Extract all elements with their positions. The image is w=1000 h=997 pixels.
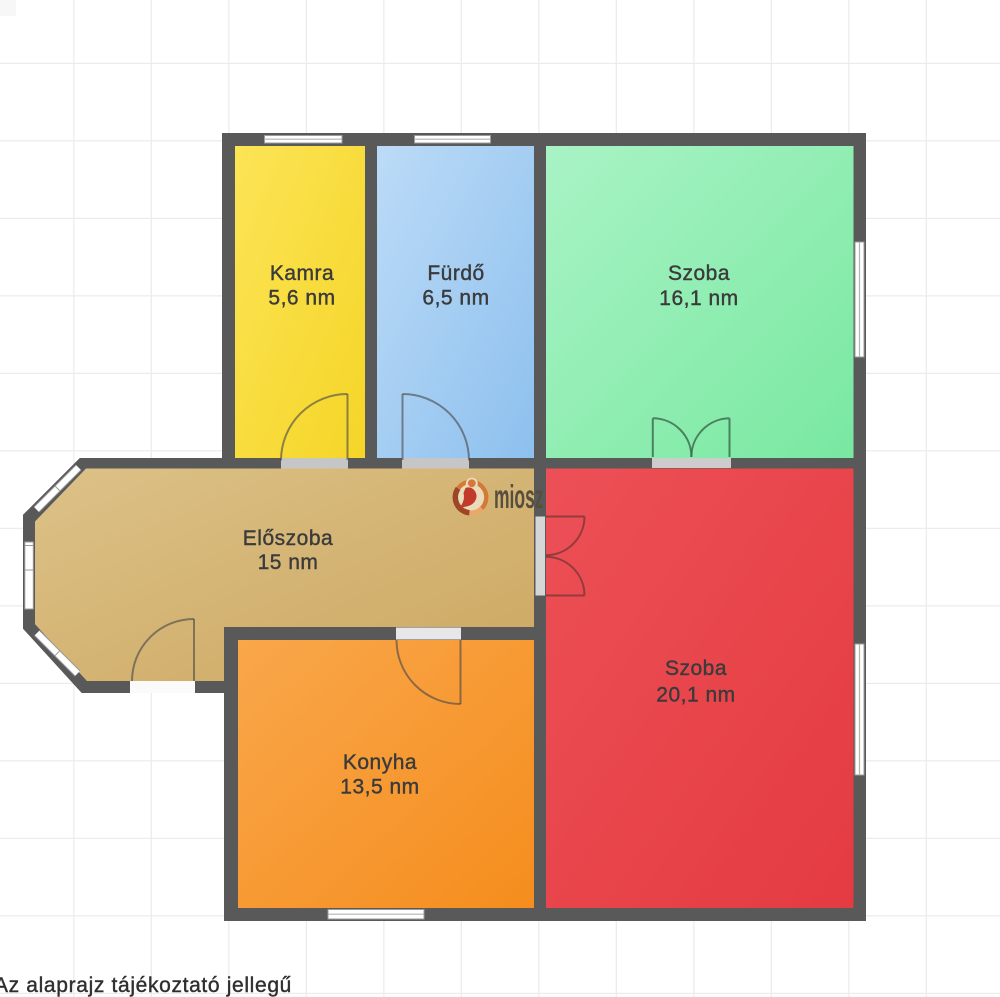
svg-text:6,5 nm: 6,5 nm	[422, 287, 489, 310]
svg-text:13,5 nm: 13,5 nm	[340, 776, 419, 799]
svg-text:20,1 nm: 20,1 nm	[656, 684, 735, 707]
svg-text:Konyha: Konyha	[343, 751, 417, 774]
svg-text:Fürdő: Fürdő	[427, 262, 484, 285]
svg-text:5,6 nm: 5,6 nm	[268, 287, 335, 310]
svg-text:Az alaprajz tájékoztató jelleg: Az alaprajz tájékoztató jellegű	[0, 974, 292, 997]
svg-text:Szoba: Szoba	[665, 657, 727, 680]
svg-text:16,1 nm: 16,1 nm	[659, 287, 738, 310]
svg-text:15 nm: 15 nm	[258, 551, 319, 574]
svg-text:Szoba: Szoba	[668, 262, 730, 285]
svg-text:miosz: miosz	[494, 478, 544, 515]
svg-text:Kamra: Kamra	[270, 262, 334, 285]
svg-text:Előszoba: Előszoba	[243, 527, 333, 550]
